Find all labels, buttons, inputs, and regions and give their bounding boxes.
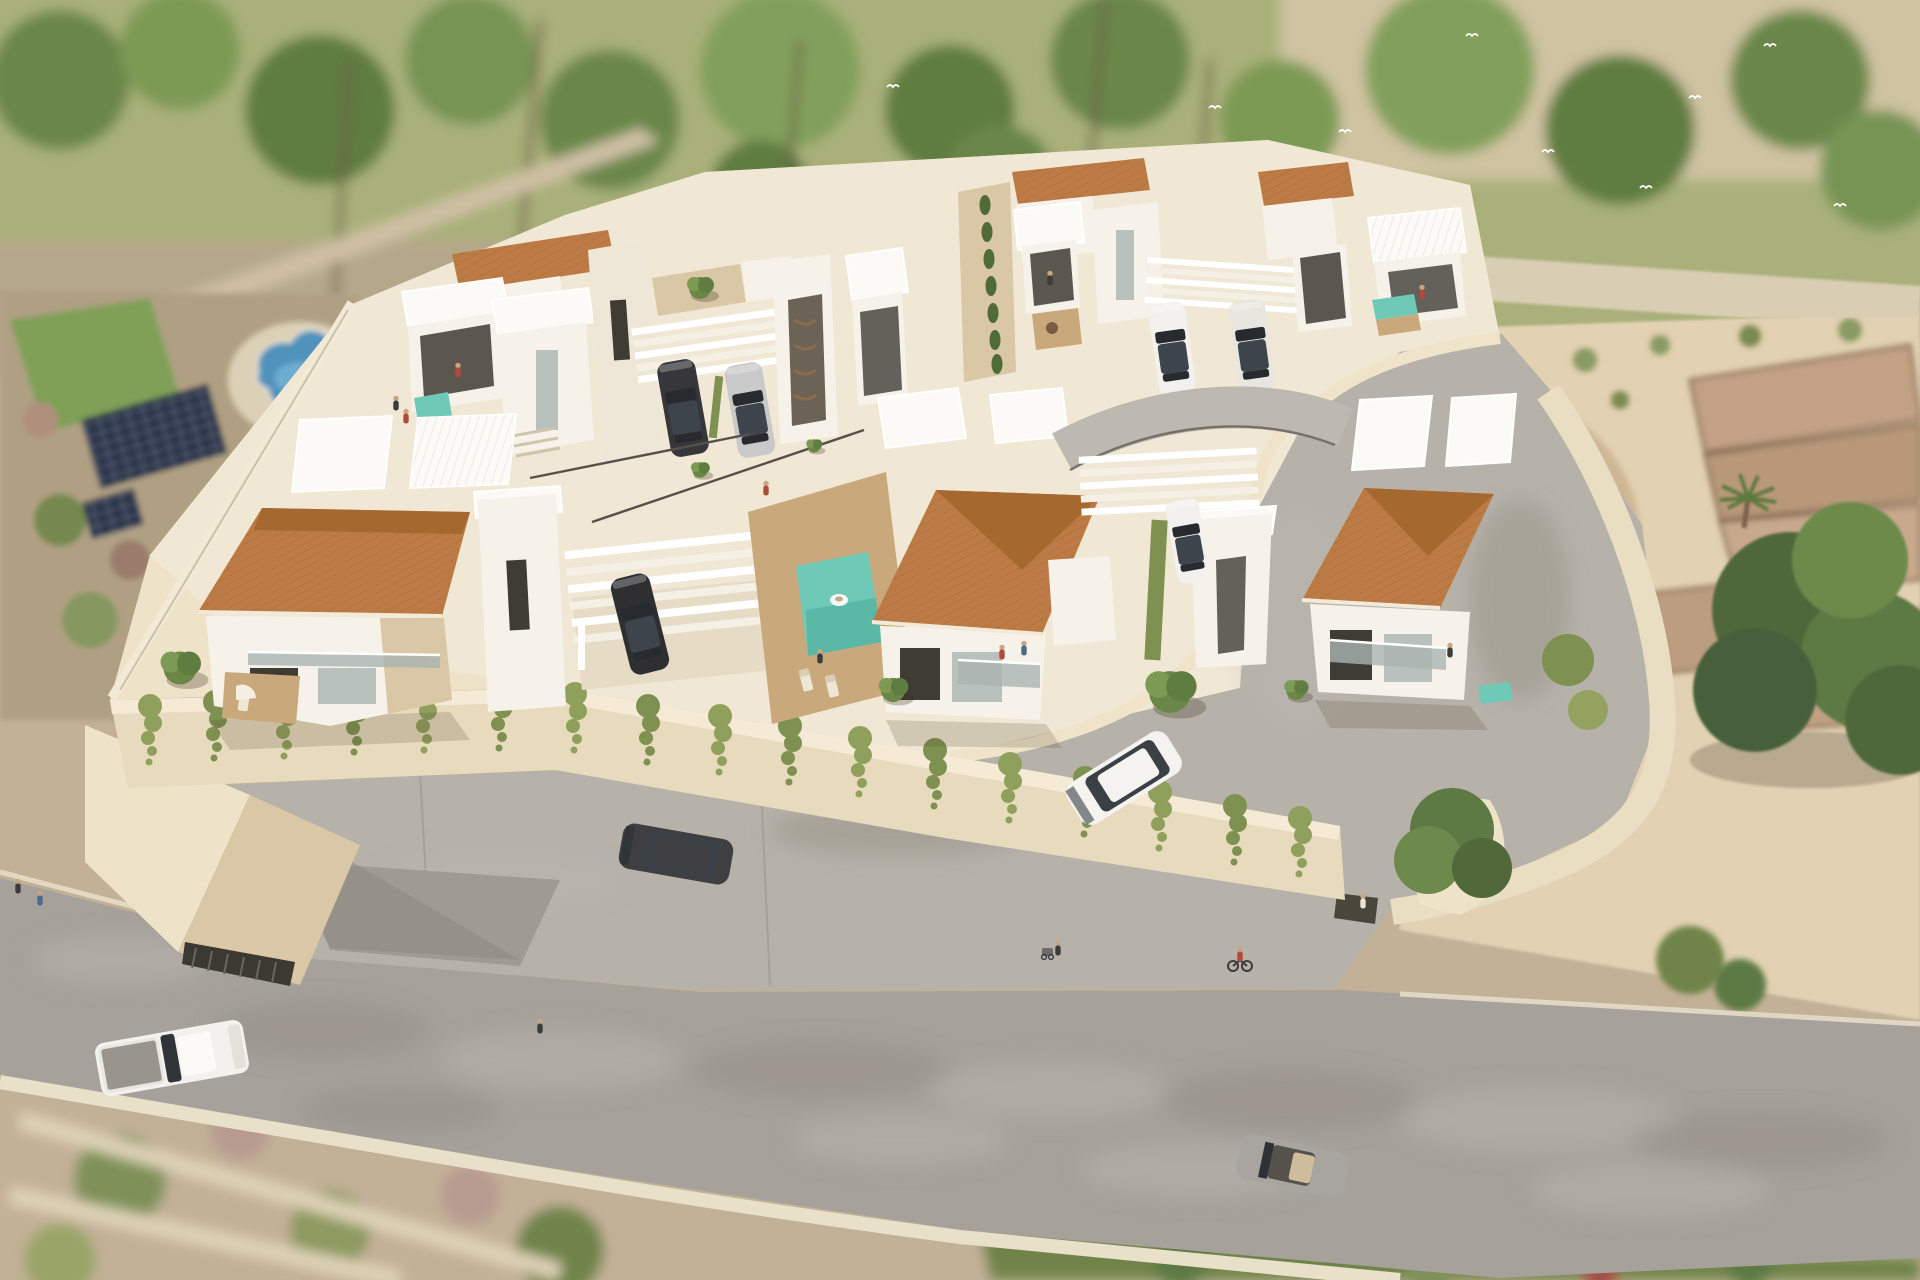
aerial-render-canvas	[0, 0, 1920, 1280]
box-balcony	[1292, 244, 1352, 332]
patio-table	[1046, 322, 1058, 334]
person-walking	[403, 409, 408, 424]
pedestrian	[37, 891, 42, 906]
render-scene	[0, 0, 1920, 1280]
person-on-balcony	[999, 645, 1004, 660]
roadside-bush	[1542, 634, 1594, 686]
person-on-balcony	[1419, 285, 1424, 300]
person-on-balcony	[455, 363, 460, 378]
box-balcony	[1022, 240, 1080, 314]
swimming-pool	[796, 552, 882, 656]
person-walking	[393, 396, 398, 411]
stair-tower	[772, 254, 838, 444]
person-at-gate	[1360, 894, 1365, 909]
pedestrian	[537, 1019, 542, 1034]
person-in-pool	[835, 597, 843, 602]
person-on-balcony	[1447, 643, 1452, 658]
person-on-balcony	[1047, 271, 1052, 286]
house-top-right	[1368, 208, 1466, 336]
pedestrian	[15, 879, 20, 894]
person-by-pool	[817, 649, 822, 664]
person-on-balcony	[1021, 641, 1026, 656]
person-walking-path	[763, 481, 768, 496]
front-terrace	[222, 672, 300, 724]
